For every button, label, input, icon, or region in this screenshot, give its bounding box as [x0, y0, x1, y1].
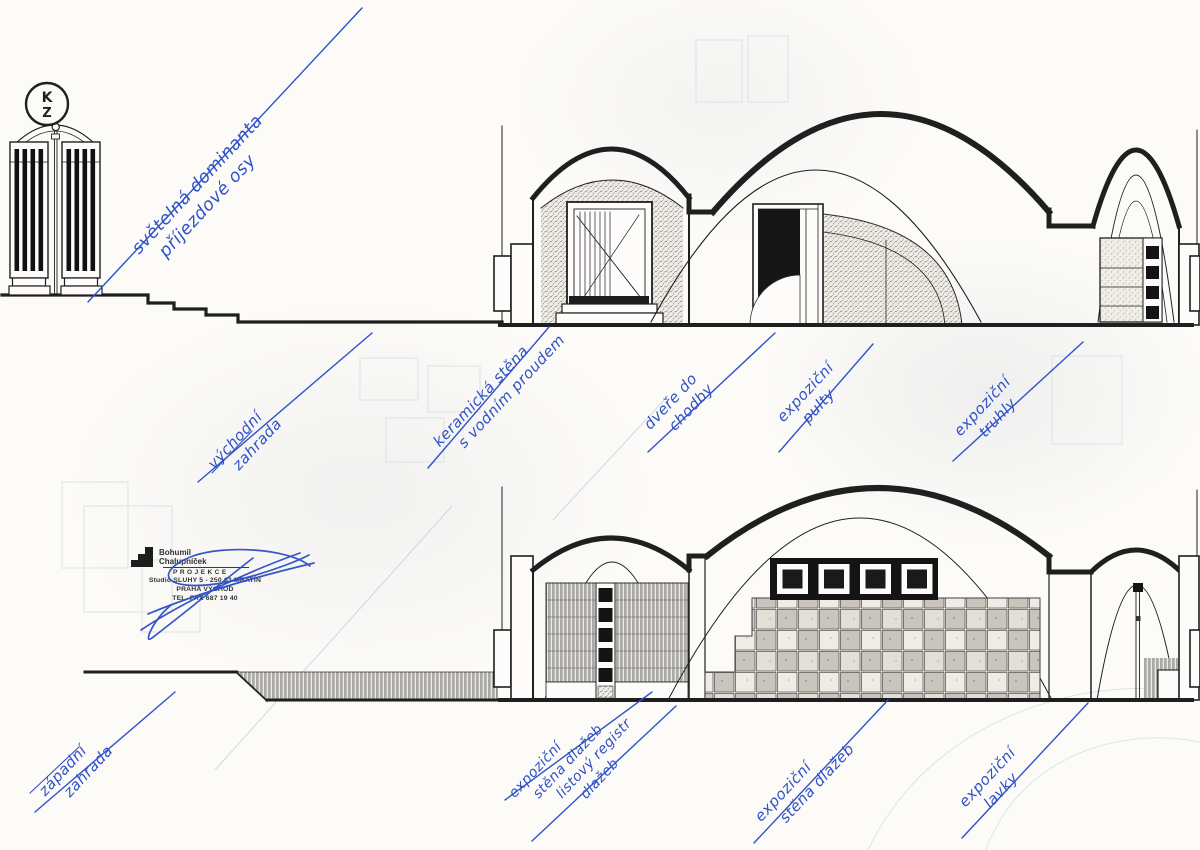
leader-lines	[30, 8, 1088, 843]
stamp-name-bottom: Chalupníček	[159, 557, 207, 566]
stamp-city: PRAHA VÝCHOD	[176, 586, 233, 593]
terrain-line	[85, 672, 267, 700]
stamp-name-top: Bohumil	[159, 548, 191, 557]
logo-letter-k: K	[42, 90, 54, 106]
exhibition-shelf-panel	[1100, 238, 1162, 322]
curtain-window	[556, 202, 663, 325]
stamp-divider	[163, 567, 249, 568]
display-window-band	[770, 558, 938, 600]
architect-stamp: Bohumil Chalupníček PROJEKCE Studio SLUH…	[126, 546, 284, 604]
logo-letter-z: Z	[42, 106, 51, 121]
corridor-door	[750, 204, 823, 325]
slim-column	[1133, 583, 1143, 700]
paving-sample-wall	[705, 598, 1040, 700]
hatched-tile-wall	[546, 583, 688, 700]
stamp-address: Studio SLUHY 5 - 250 63 MRATÍN	[149, 577, 261, 584]
stamp-role: PROJEKCE	[173, 569, 249, 576]
drawing-sheet: K Z	[0, 0, 1200, 850]
terrain-steps	[2, 295, 502, 322]
stamp-phone: TEL. FAX 687 19 40	[172, 595, 238, 602]
curved-stipple-wall	[823, 214, 962, 325]
kz-monogram-logo: K Z	[26, 83, 68, 125]
light-pylon-tower	[9, 123, 102, 295]
stamp-logo-icon	[130, 546, 154, 568]
terrain-hatch-strip	[237, 672, 497, 700]
